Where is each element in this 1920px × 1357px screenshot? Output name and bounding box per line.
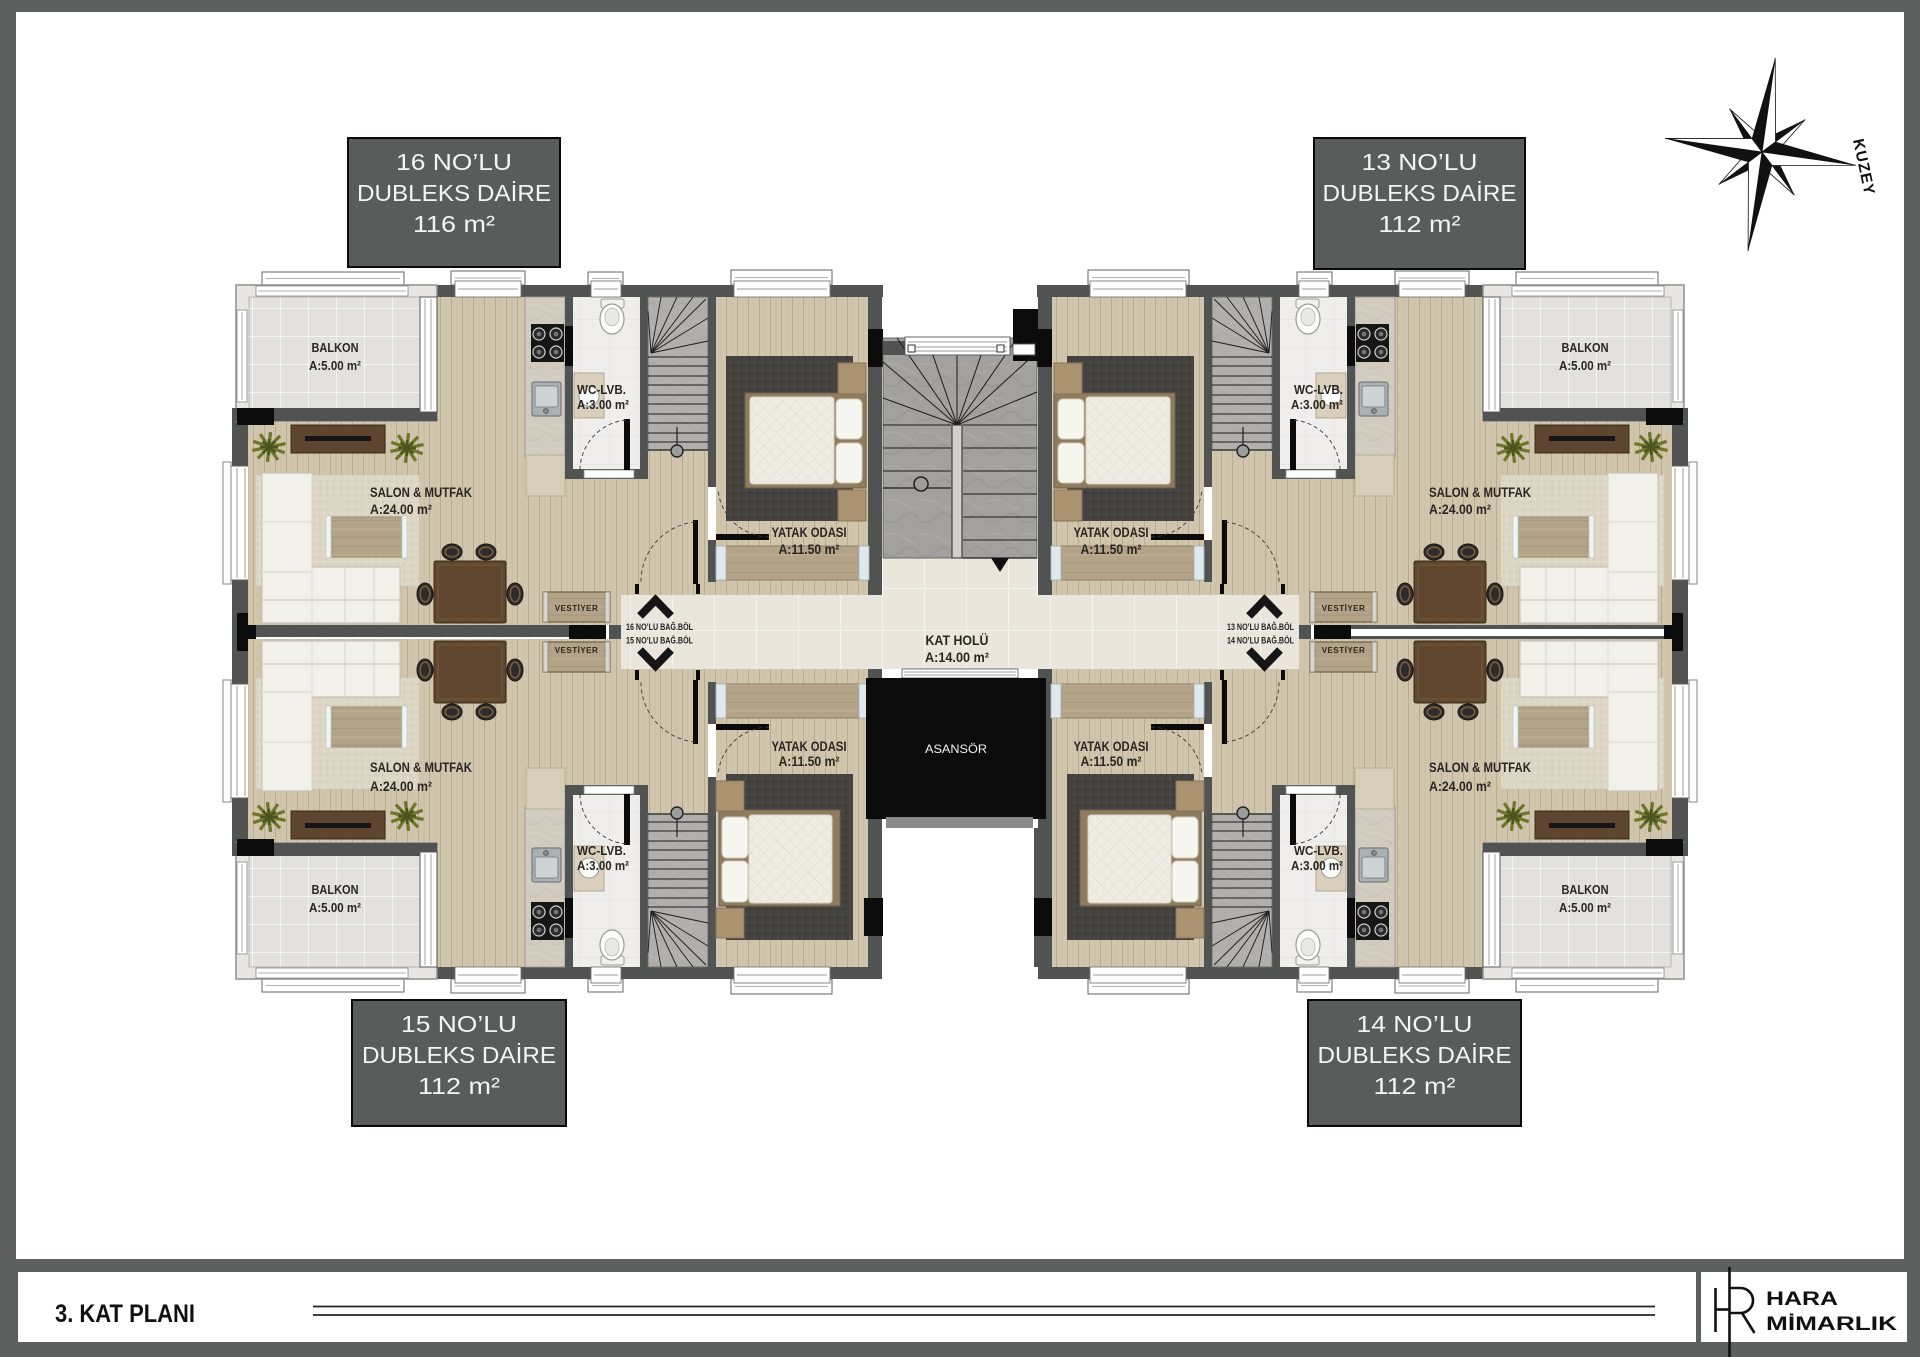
svg-text:A:5.00 m²: A:5.00 m² [309, 359, 361, 373]
svg-text:DUBLEKS DAİRE: DUBLEKS DAİRE [1318, 1042, 1512, 1068]
svg-text:BALKON: BALKON [312, 883, 359, 897]
svg-text:YATAK ODASI: YATAK ODASI [772, 739, 847, 754]
svg-text:116 m²: 116 m² [413, 211, 495, 237]
svg-text:DUBLEKS DAİRE: DUBLEKS DAİRE [357, 180, 551, 206]
svg-text:A:3.00 m²: A:3.00 m² [1291, 859, 1343, 873]
svg-text:14 NO’LU: 14 NO’LU [1357, 1011, 1473, 1037]
svg-text:SALON & MUTFAK: SALON & MUTFAK [370, 485, 472, 500]
svg-text:BALKON: BALKON [1562, 883, 1609, 897]
svg-text:VESTİYER: VESTİYER [555, 604, 599, 613]
svg-text:A:24.00 m²: A:24.00 m² [1429, 502, 1491, 517]
svg-text:A:3.00 m²: A:3.00 m² [1291, 398, 1343, 412]
svg-text:SALON & MUTFAK: SALON & MUTFAK [370, 760, 472, 775]
svg-text:A:14.00 m²: A:14.00 m² [925, 650, 989, 665]
svg-text:A:24.00 m²: A:24.00 m² [370, 779, 432, 794]
svg-text:SALON & MUTFAK: SALON & MUTFAK [1429, 760, 1531, 775]
svg-text:YATAK ODASI: YATAK ODASI [772, 525, 847, 540]
svg-text:A:24.00 m²: A:24.00 m² [370, 502, 432, 517]
svg-text:MİMARLIK: MİMARLIK [1766, 1314, 1897, 1335]
svg-text:A:5.00 m²: A:5.00 m² [1559, 359, 1611, 373]
svg-text:A:5.00 m²: A:5.00 m² [1559, 901, 1611, 915]
svg-text:16 NO’LU BAĞ.BÖL: 16 NO’LU BAĞ.BÖL [626, 621, 693, 632]
svg-text:A:3.00 m²: A:3.00 m² [577, 859, 629, 873]
svg-text:112 m²: 112 m² [418, 1073, 500, 1099]
svg-text:DUBLEKS DAİRE: DUBLEKS DAİRE [362, 1042, 556, 1068]
svg-text:WC-LVB.: WC-LVB. [1294, 383, 1343, 397]
svg-text:13 NO’LU: 13 NO’LU [1362, 149, 1478, 175]
svg-text:16 NO’LU: 16 NO’LU [396, 149, 512, 175]
svg-text:SALON & MUTFAK: SALON & MUTFAK [1429, 485, 1531, 500]
svg-text:BALKON: BALKON [312, 341, 359, 355]
svg-text:YATAK ODASI: YATAK ODASI [1074, 525, 1149, 540]
svg-text:HARA: HARA [1766, 1289, 1838, 1310]
svg-text:WC-LVB.: WC-LVB. [577, 844, 626, 858]
svg-text:A:3.00 m²: A:3.00 m² [577, 398, 629, 412]
svg-text:A:11.50 m²: A:11.50 m² [1081, 754, 1142, 769]
svg-text:YATAK ODASI: YATAK ODASI [1074, 739, 1149, 754]
svg-text:VESTİYER: VESTİYER [1322, 604, 1366, 613]
svg-text:ASANSÖR: ASANSÖR [925, 742, 987, 756]
svg-text:KAT HOLÜ: KAT HOLÜ [926, 633, 989, 648]
svg-text:A:11.50 m²: A:11.50 m² [1081, 542, 1142, 557]
svg-text:DUBLEKS DAİRE: DUBLEKS DAİRE [1323, 180, 1517, 206]
svg-text:15 NO’LU BAĞ.BÖL: 15 NO’LU BAĞ.BÖL [626, 635, 693, 646]
svg-text:VESTİYER: VESTİYER [1322, 646, 1366, 655]
svg-text:BALKON: BALKON [1562, 341, 1609, 355]
svg-text:A:11.50 m²: A:11.50 m² [779, 754, 840, 769]
svg-text:A:5.00 m²: A:5.00 m² [309, 901, 361, 915]
svg-text:WC-LVB.: WC-LVB. [577, 383, 626, 397]
svg-text:112 m²: 112 m² [1379, 211, 1461, 237]
svg-text:3. KAT PLANI: 3. KAT PLANI [55, 1300, 195, 1328]
svg-text:15 NO’LU: 15 NO’LU [401, 1011, 517, 1037]
svg-text:A:11.50 m²: A:11.50 m² [779, 542, 840, 557]
svg-text:14 NO’LU BAĞ.BÖL: 14 NO’LU BAĞ.BÖL [1227, 635, 1294, 646]
svg-text:A:24.00 m²: A:24.00 m² [1429, 779, 1491, 794]
svg-text:112 m²: 112 m² [1374, 1073, 1456, 1099]
svg-text:WC-LVB.: WC-LVB. [1294, 844, 1343, 858]
svg-text:VESTİYER: VESTİYER [555, 646, 599, 655]
svg-text:13 NO’LU BAĞ.BÖL: 13 NO’LU BAĞ.BÖL [1227, 621, 1294, 632]
